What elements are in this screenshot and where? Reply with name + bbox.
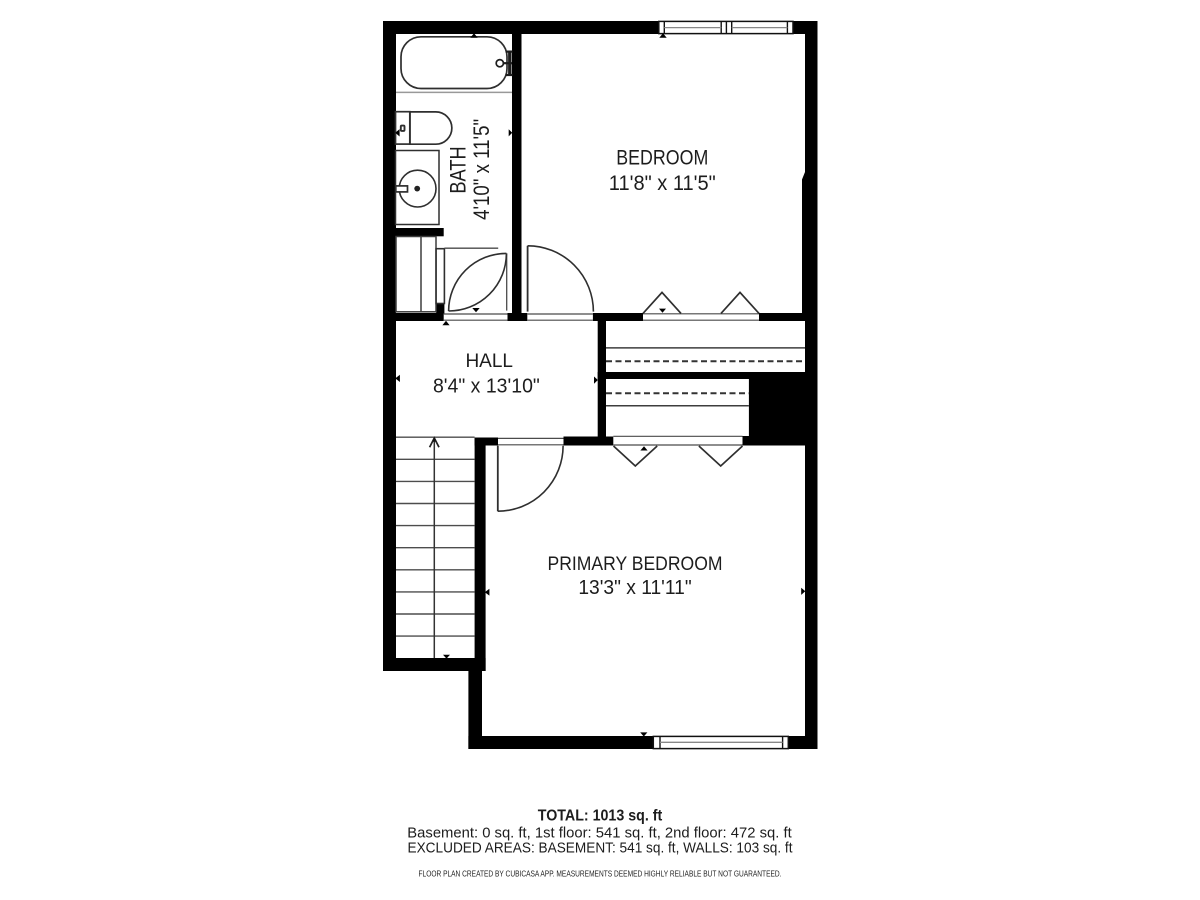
svg-text:8'4" x 13'10": 8'4" x 13'10" (433, 375, 540, 398)
svg-text:BATH: BATH (446, 146, 471, 193)
svg-text:13'3" x 11'11": 13'3" x 11'11" (578, 577, 691, 599)
svg-text:4'10" x 11'5": 4'10" x 11'5" (469, 119, 494, 220)
svg-text:TOTAL: 1013 sq. ft: TOTAL: 1013 sq. ft (538, 808, 663, 825)
svg-text:Basement: 0 sq. ft, 1st floor:: Basement: 0 sq. ft, 1st floor: 541 sq. f… (407, 826, 791, 842)
svg-text:FLOOR PLAN CREATED BY CUBICASA: FLOOR PLAN CREATED BY CUBICASA APP. MEAS… (419, 868, 782, 878)
svg-text:PRIMARY BEDROOM: PRIMARY BEDROOM (548, 553, 723, 575)
svg-text:HALL: HALL (465, 350, 513, 372)
svg-text:11'8" x 11'5": 11'8" x 11'5" (609, 172, 716, 195)
svg-text:EXCLUDED AREAS: BASEMENT: 541: EXCLUDED AREAS: BASEMENT: 541 sq. ft, WA… (408, 841, 793, 857)
svg-text:BEDROOM: BEDROOM (616, 147, 708, 170)
